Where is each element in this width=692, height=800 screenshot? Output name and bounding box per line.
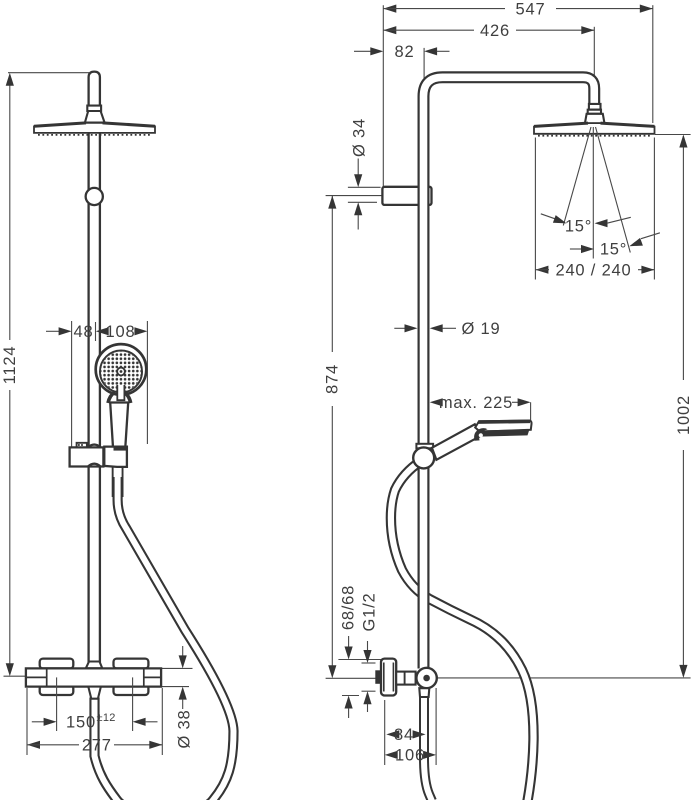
svg-text:15°: 15° (600, 240, 627, 258)
svg-text:max. 225: max. 225 (439, 394, 513, 412)
svg-text:G1/2: G1/2 (361, 593, 379, 632)
svg-text:Ø 19: Ø 19 (462, 320, 501, 338)
svg-text:874: 874 (324, 364, 342, 394)
svg-text:Ø 38: Ø 38 (176, 710, 194, 749)
svg-text:±12: ±12 (97, 712, 116, 724)
svg-text:Ø 34: Ø 34 (350, 118, 368, 157)
svg-text:68/68: 68/68 (340, 585, 358, 630)
svg-text:1124: 1124 (1, 346, 19, 385)
svg-text:426: 426 (480, 22, 510, 40)
svg-text:240 / 240: 240 / 240 (555, 262, 631, 280)
svg-text:1002: 1002 (675, 395, 692, 435)
svg-text:277: 277 (82, 737, 112, 755)
svg-text:15°: 15° (565, 217, 592, 235)
svg-text:108: 108 (106, 323, 136, 341)
svg-text:82: 82 (395, 43, 415, 61)
svg-text:48: 48 (74, 323, 94, 341)
svg-text:547: 547 (516, 0, 546, 18)
svg-text:106: 106 (395, 747, 425, 765)
svg-text:150: 150 (66, 713, 96, 731)
svg-text:84: 84 (394, 726, 414, 744)
